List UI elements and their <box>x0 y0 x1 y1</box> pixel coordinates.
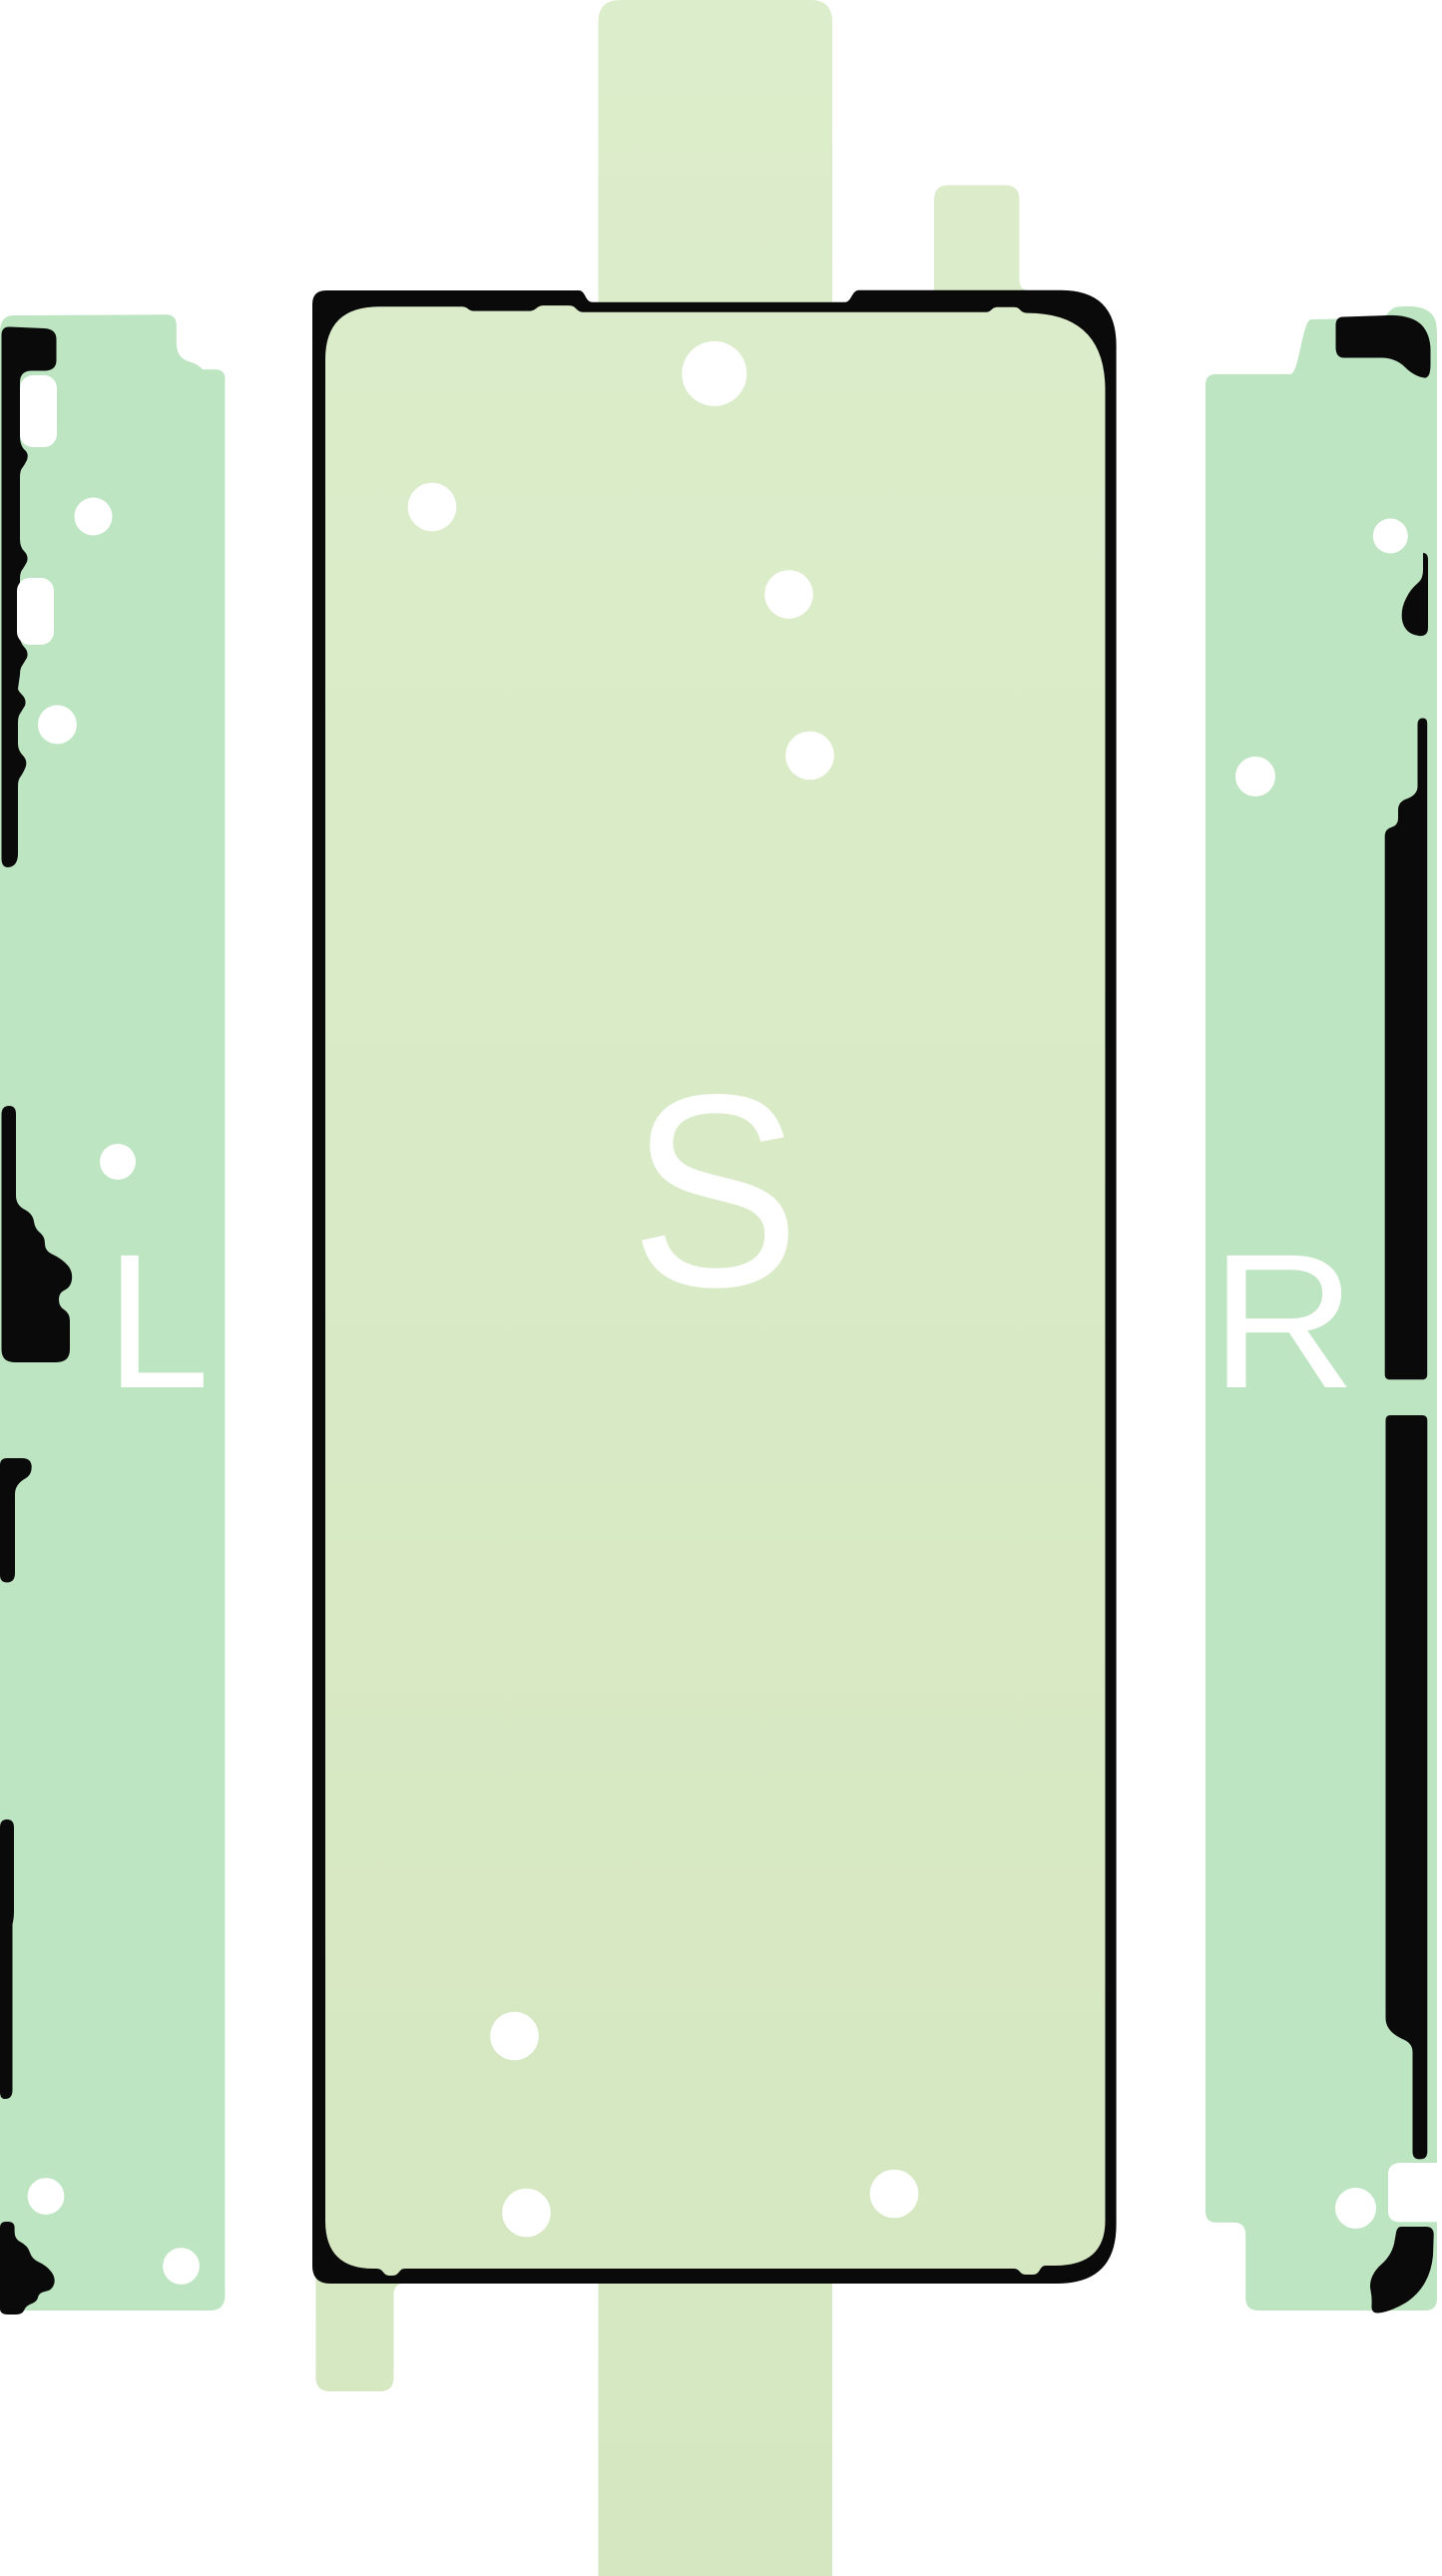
svg-text:R: R <box>1210 1214 1356 1428</box>
svg-text:L: L <box>106 1214 210 1428</box>
svg-text:S: S <box>631 1038 800 1344</box>
